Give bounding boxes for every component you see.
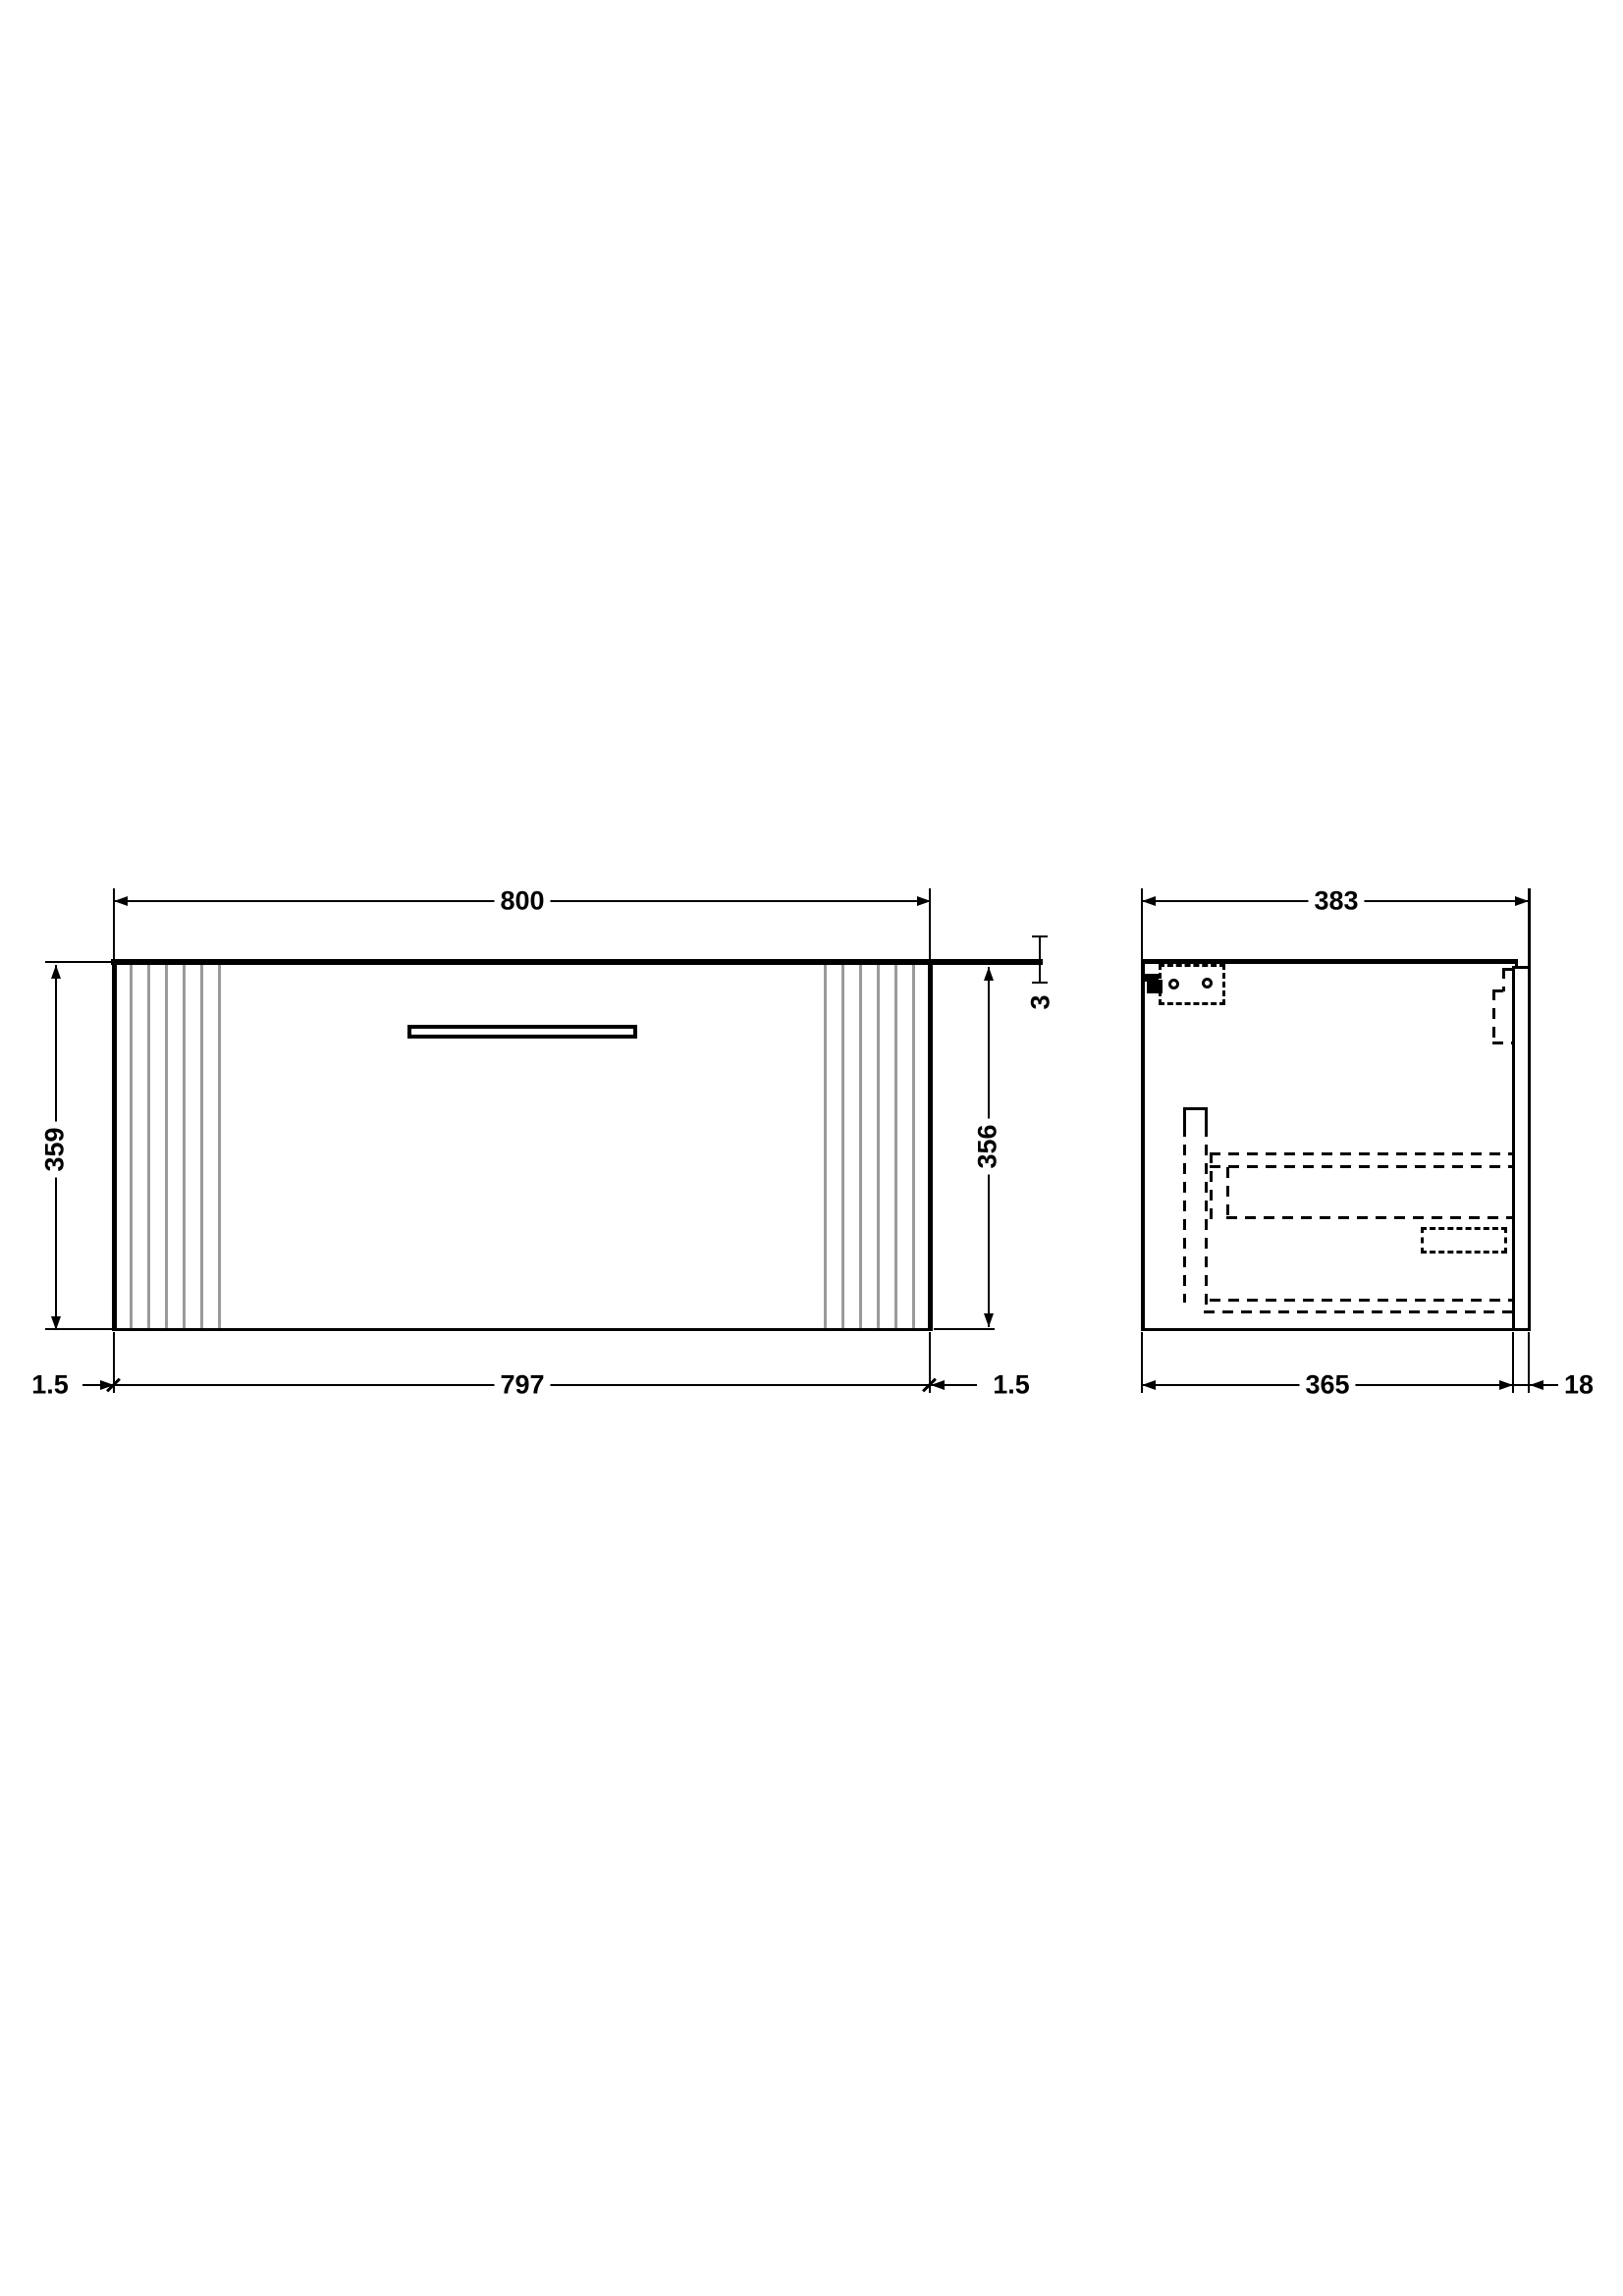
flute-line-left-4 [183,965,186,1328]
dim-383-ext-left [1141,888,1143,959]
dim-359-ext-top [45,961,112,963]
rail-bracket-dash-v1 [1502,968,1505,991]
bracket-screw-hole-2 [1202,978,1213,988]
front-left-edge [112,959,117,1331]
front-worktop-line [111,959,1043,965]
bracket-hook-mark-body [1147,980,1163,993]
flute-line-right-6 [824,965,827,1328]
drawer-rail-conn-1 [1210,1152,1213,1219]
technical-drawing-canvas: 800 359 356 3 1.5 797 1.5 [0,0,1623,2296]
dim-label-overall-height: 359 [42,1121,69,1177]
dim-label-side-gap-right: 1.5 [987,1372,1036,1399]
dim-356-arrow-top [984,967,994,981]
dim-356-arrow-bottom [984,1313,994,1327]
flute-line-left-5 [200,965,203,1328]
dim-365-arrow-right [1499,1380,1513,1390]
bracket-screw-hole-1 [1168,979,1179,989]
flute-line-right-3 [877,965,880,1328]
dim-label-worktop-thickness: 3 [1028,988,1055,1015]
drawer-front-stub-right [1205,1107,1208,1126]
side-back-panel-line [1512,966,1515,1331]
dim-383-arrow-right [1515,896,1529,906]
dim-label-side-gap-left: 1.5 [26,1372,75,1399]
front-bottom-edge [112,1328,933,1331]
drawer-runner-block [1421,1227,1507,1254]
drawer-rail-conn-2 [1226,1167,1229,1218]
dim-label-wall-rail-thickness: 18 [1558,1372,1599,1399]
drawer-rail-bottom-2 [1204,1310,1513,1313]
dim-359-ext-bottom [45,1328,112,1330]
dim-383-arrow-left [1142,896,1156,906]
dim-800-arrow-left [114,896,128,906]
dim-label-carcass-height: 356 [975,1118,1001,1174]
drawer-handle [407,1025,637,1039]
drawer-front-dash-right [1205,1126,1208,1313]
flute-line-left-6 [218,965,221,1328]
rail-bracket-dash-h2 [1492,1041,1513,1044]
drawer-rail-top-2 [1210,1165,1513,1168]
side-bottom-edge [1141,1328,1531,1331]
dim-label-carcass-depth: 365 [1299,1372,1355,1399]
drawer-rail-bottom-1 [1210,1299,1513,1302]
dim-359-arrow-top [51,965,61,979]
dim-800-ext-right [929,888,931,959]
dim-3-tick-top [1032,935,1048,937]
dim-15-left-arrow [100,1380,114,1390]
drawer-rail-mid [1226,1216,1513,1219]
front-right-edge [928,959,933,1331]
dim-label-overall-depth: 383 [1308,888,1364,915]
rail-bracket-dash-v2 [1492,989,1495,1044]
drawer-rail-top-1 [1210,1152,1513,1155]
dim-label-overall-width: 800 [494,888,550,915]
flute-line-right-4 [859,965,862,1328]
flute-line-left-2 [147,965,150,1328]
dim-line-3 [1039,936,1041,984]
dim-800-ext-left [113,888,115,959]
flute-line-right-5 [841,965,844,1328]
dim-365-arrow-left [1142,1380,1156,1390]
dim-label-carcass-width: 797 [494,1372,550,1399]
side-back-edge [1528,888,1531,1331]
dim-356-ext-bottom [934,1328,995,1330]
side-left-edge [1141,959,1145,1331]
flute-line-right-2 [894,965,897,1328]
drawer-front-stub-left [1183,1107,1186,1126]
flute-line-left-1 [130,965,133,1328]
flute-line-left-3 [165,965,168,1328]
dim-15-right-arrow [931,1380,945,1390]
dim-3-tick-bottom [1032,982,1048,984]
flute-line-right-1 [912,965,915,1328]
dim-18-arrow [1530,1380,1543,1390]
drawer-front-dash-left [1183,1126,1186,1303]
